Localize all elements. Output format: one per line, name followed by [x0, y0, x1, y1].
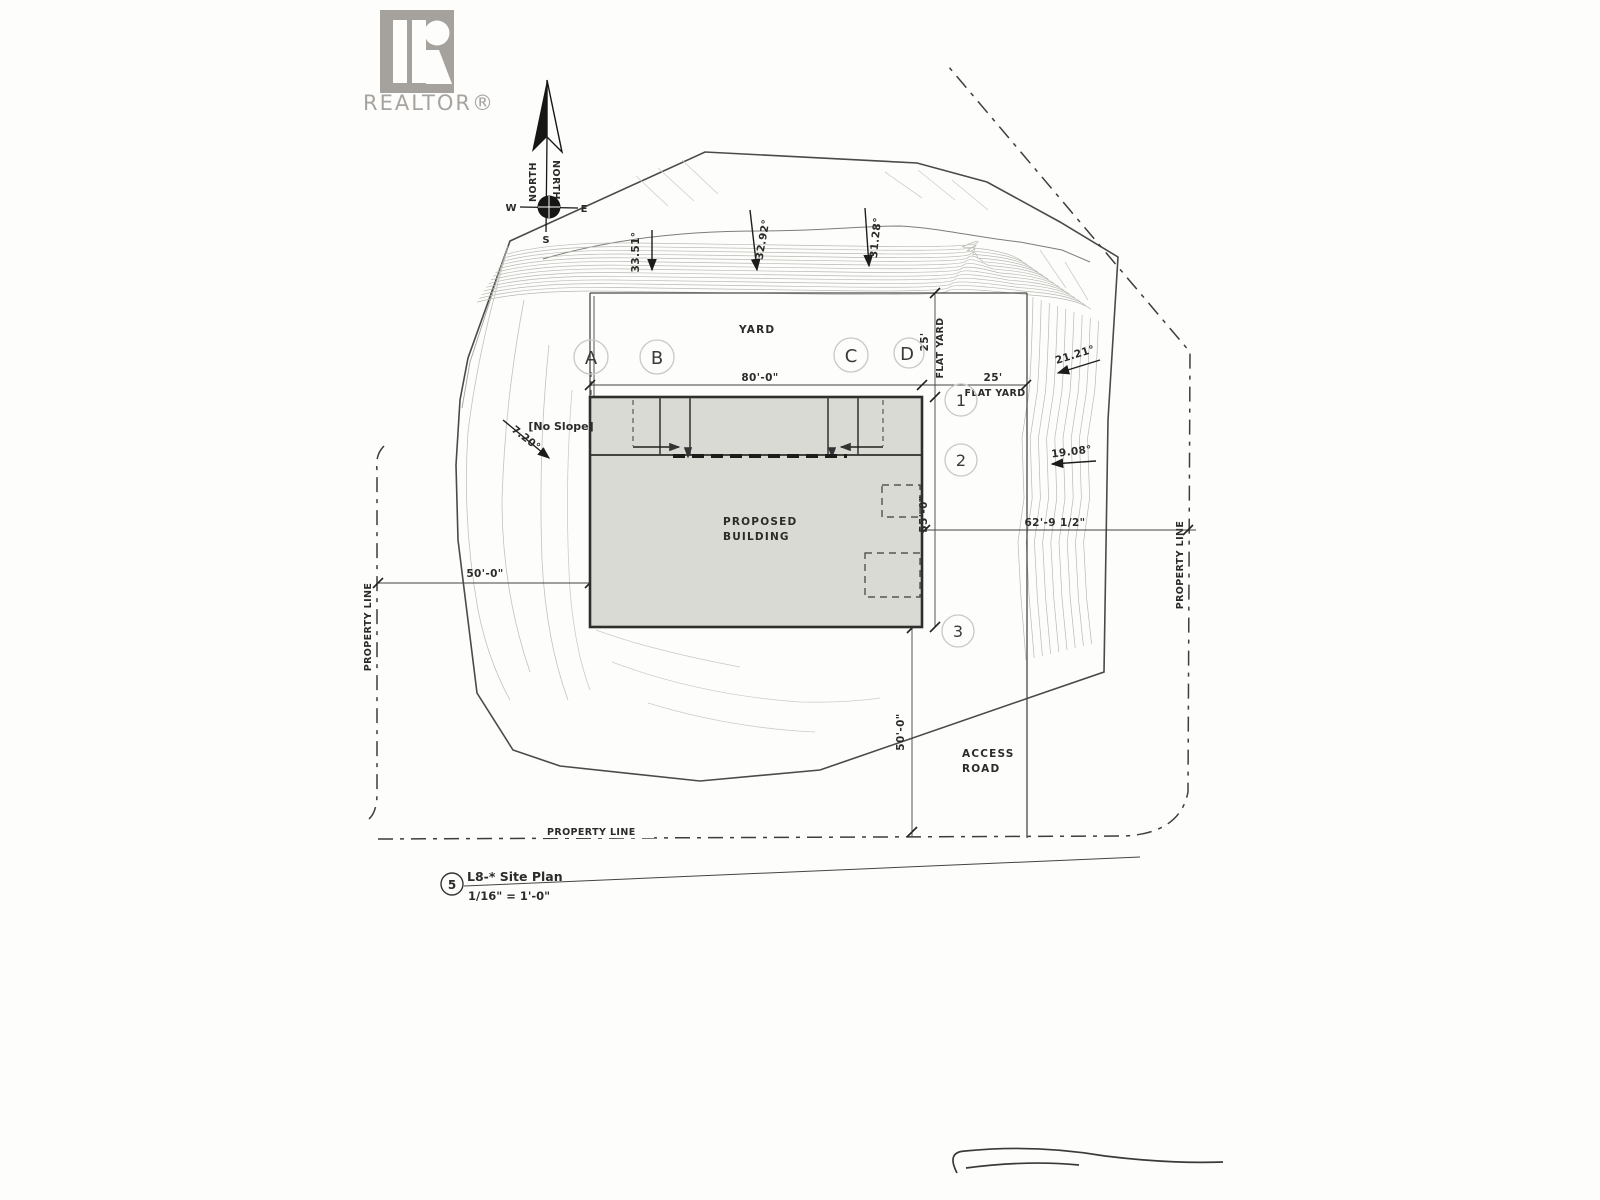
drawing-title: L8-* Site Plan	[467, 869, 563, 884]
west-contours	[466, 258, 590, 700]
yard-label: YARD	[738, 324, 775, 336]
north-label-left: NORTH	[528, 162, 539, 202]
dim-building-depth: 55'-0"	[918, 495, 930, 532]
flat-yard-vertical-dim: 25'	[919, 332, 931, 351]
dim-east-to-property: 62'-9 1/2"	[1024, 517, 1085, 529]
north-label-right: NORTH	[550, 160, 561, 200]
proposed-building: PROPOSED BUILDING	[590, 397, 922, 627]
drawing-scale: 1/16" = 1'-0"	[468, 889, 550, 903]
site-plan-page: PROPERTY LINE PROPERTY LINE PROPERTY LIN…	[0, 0, 1600, 1200]
grid-column-d: D	[900, 344, 914, 365]
slope-hatching	[636, 160, 1088, 300]
title-block: 5 L8-* Site Plan 1/16" = 1'-0"	[441, 857, 1140, 903]
road-sketch-lines	[953, 1148, 1223, 1173]
grid-column-c: C	[845, 346, 858, 367]
access-road-label-line2: ROAD	[962, 763, 1000, 775]
south-contours	[596, 630, 880, 732]
property-line-west-label: PROPERTY LINE	[363, 583, 374, 672]
site-plan-drawing: PROPERTY LINE PROPERTY LINE PROPERTY LIN…	[0, 0, 1600, 1200]
slope-north-2: 32.92°	[754, 218, 773, 260]
dim-building-width: 80'-0"	[741, 372, 778, 384]
compass-south: S	[542, 235, 549, 246]
realtor-wordmark: REALTOR®	[363, 91, 495, 115]
building-label-line2: BUILDING	[723, 531, 790, 543]
no-slope-label: [No Slope]	[528, 420, 593, 433]
compass-west: W	[505, 203, 516, 214]
grid-row-1: 1	[956, 391, 966, 410]
grid-column-b: B	[651, 348, 663, 369]
grid-column-a: A	[585, 348, 598, 369]
detail-number: 5	[448, 878, 456, 892]
slope-north-3: 31.28°	[868, 217, 884, 259]
north-arrow-icon: NORTH NORTH W E S	[505, 80, 587, 246]
slope-north-1: 33.51°	[630, 232, 642, 273]
flat-yard-horizontal-dim: 25'	[983, 372, 1002, 384]
dim-west-setback: 50'-0"	[466, 568, 503, 580]
property-line-south-label: PROPERTY LINE	[547, 827, 636, 838]
dim-road-length: 50'-0"	[895, 713, 907, 750]
compass-east: E	[581, 204, 588, 215]
access-road-label-line1: ACCESS	[962, 748, 1015, 760]
grid-row-3: 3	[953, 622, 963, 641]
flat-yard-vertical-label: FLAT YARD	[935, 317, 946, 378]
grid-row-2: 2	[956, 451, 966, 470]
building-label-line1: PROPOSED	[723, 516, 797, 528]
slope-east-2: 19.08°	[1051, 444, 1093, 461]
realtor-logo: REALTOR®	[363, 10, 495, 115]
